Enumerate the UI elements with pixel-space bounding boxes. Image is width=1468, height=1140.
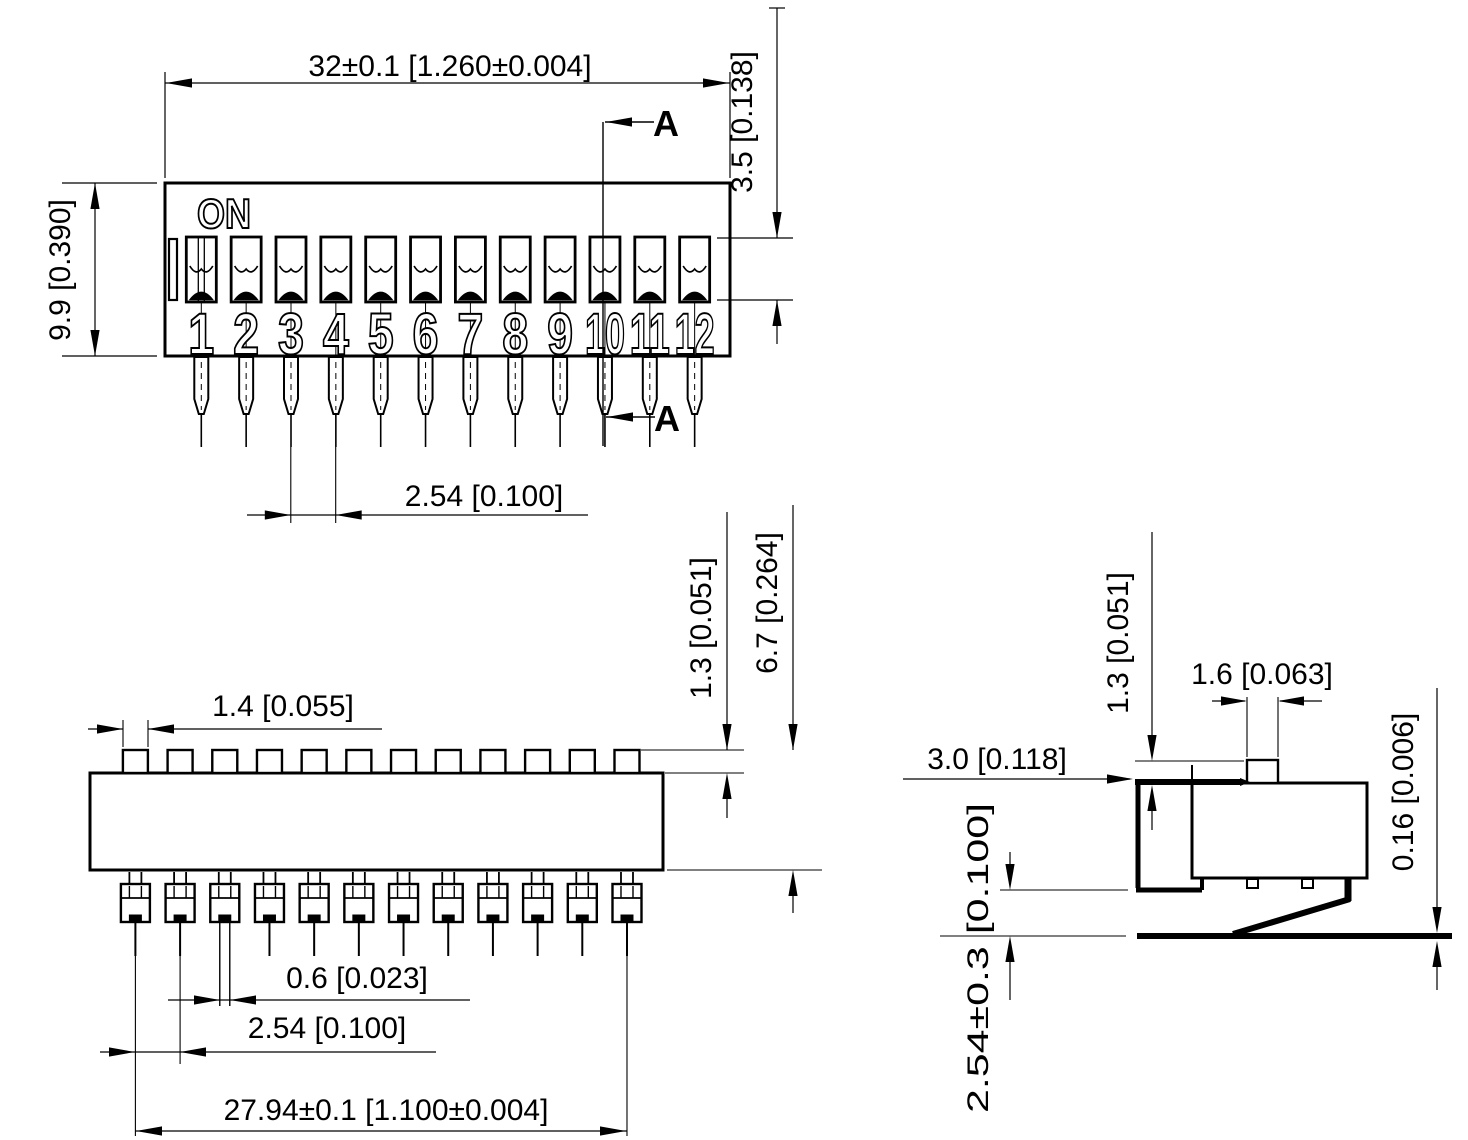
bottom-actuator-10 xyxy=(525,750,550,773)
bottom-pin-5 xyxy=(300,872,329,956)
front-switch-4 xyxy=(321,237,351,302)
arrowhead xyxy=(90,330,99,356)
bottom-body-outline xyxy=(90,773,663,870)
bottom-actuator-7 xyxy=(391,750,416,773)
front-switch-8 xyxy=(500,237,530,302)
arrowhead xyxy=(607,412,633,421)
arrowhead xyxy=(90,183,99,209)
front-pin-6 xyxy=(419,357,433,447)
bottom-actuator-width-dimension: 1.4 [0.055] xyxy=(212,690,354,723)
front-switch-12 xyxy=(680,237,710,302)
bottom-actuator-8 xyxy=(436,750,461,773)
bottom-pin-10 xyxy=(523,872,552,956)
arrowhead xyxy=(194,995,220,1004)
front-pin-2 xyxy=(239,357,253,447)
arrowhead xyxy=(1107,774,1133,783)
bottom-actuator-3 xyxy=(212,750,237,773)
arrowhead xyxy=(722,773,731,799)
front-switch-6 xyxy=(411,237,441,302)
bottom-actuator-4 xyxy=(257,750,282,773)
bottom-pin-2 xyxy=(166,872,195,1064)
arrowhead xyxy=(1147,735,1156,761)
arrowhead xyxy=(1432,907,1441,933)
front-switch-3 xyxy=(276,237,306,302)
front-height-dimension: 9.9 [0.390] xyxy=(44,199,77,341)
bottom-actuator-height-dimension: 1.3 [0.051] xyxy=(685,557,718,699)
technical-drawing-canvas: 123456789101112 ON 32±0.1 [1.260±0.004] … xyxy=(0,0,1468,1140)
bottom-span-dimension: 27.94±0.1 [1.100±0.004] xyxy=(224,1094,549,1127)
front-pitch-dimension: 2.54 [0.100] xyxy=(405,480,563,513)
arrowhead xyxy=(788,870,797,896)
front-switch-10 xyxy=(590,237,620,302)
arrowhead xyxy=(722,724,731,750)
front-pin-row xyxy=(194,357,701,447)
front-switch-11 xyxy=(635,237,665,302)
front-switch-7 xyxy=(455,237,485,302)
front-pin-9 xyxy=(553,357,567,447)
front-pin-12 xyxy=(688,357,702,447)
bottom-pin-9 xyxy=(478,872,507,956)
front-pin-1 xyxy=(194,357,208,447)
front-pin-5 xyxy=(374,357,388,447)
arrowhead xyxy=(336,510,362,519)
bottom-actuator-5 xyxy=(302,750,327,773)
bottom-pitch-dimension: 2.54 [0.100] xyxy=(248,1012,406,1045)
front-pin-8 xyxy=(508,357,522,447)
front-pin-3 xyxy=(284,357,298,447)
side-lead-pitch-dimension: 2.54±0.3 [0.100] xyxy=(962,803,995,1113)
bottom-actuator-2 xyxy=(168,750,193,773)
section-label-top: A xyxy=(653,103,679,144)
bottom-pin-3 xyxy=(210,872,239,1006)
arrowhead xyxy=(788,724,797,750)
arrowhead xyxy=(148,724,174,733)
side-view: 3.0 [0.118] 1.3 [0.051] 1.6 [0.063] 0.16… xyxy=(927,572,1420,1113)
front-switch-1 xyxy=(186,237,216,302)
side-actuator-height-dimension: 1.3 [0.051] xyxy=(1102,572,1135,714)
bottom-actuator-9 xyxy=(480,750,505,773)
bottom-actuator-12 xyxy=(614,750,639,773)
arrowhead xyxy=(1278,696,1304,705)
front-switch-9 xyxy=(545,237,575,302)
side-lead-offset-dimension: 3.0 [0.118] xyxy=(927,743,1067,776)
arrowhead xyxy=(166,78,192,87)
arrowhead xyxy=(230,995,256,1004)
arrowhead xyxy=(600,1126,626,1135)
bottom-view: 1.4 [0.055] 1.3 [0.051] 6.7 [0.264] 0.6 … xyxy=(90,532,784,1136)
front-view: 123456789101112 ON 32±0.1 [1.260±0.004] … xyxy=(44,50,759,513)
bottom-pin-4 xyxy=(255,872,284,956)
arrowhead xyxy=(1005,864,1014,890)
arrowhead xyxy=(97,724,123,733)
side-coplanarity-dimension: 0.16 [0.006] xyxy=(1387,713,1420,871)
arrowhead xyxy=(1221,696,1247,705)
side-actuator-width-dimension: 1.6 [0.063] xyxy=(1191,658,1333,691)
arrowhead xyxy=(1005,936,1014,962)
arrowhead xyxy=(1432,941,1441,967)
bottom-pin-1 xyxy=(121,872,150,1136)
section-label-bottom: A xyxy=(654,398,680,439)
bottom-pin-11 xyxy=(568,872,597,956)
on-label: ON xyxy=(197,190,251,237)
bottom-pin-8 xyxy=(434,872,463,956)
bottom-pin-6 xyxy=(344,872,373,956)
front-switch-5 xyxy=(366,237,396,302)
arrowhead xyxy=(606,117,632,126)
arrowhead xyxy=(265,510,291,519)
front-left-rib xyxy=(169,239,177,300)
arrowhead xyxy=(772,300,781,326)
side-foot-stub-2 xyxy=(1302,879,1313,888)
front-pin-4 xyxy=(329,357,343,447)
arrowhead xyxy=(1147,785,1156,811)
dip-switch-technical-drawing: 123456789101112 ON 32±0.1 [1.260±0.004] … xyxy=(0,0,1468,1140)
front-switch-2 xyxy=(231,237,261,302)
front-width-dimension: 32±0.1 [1.260±0.004] xyxy=(308,50,591,83)
arrowhead xyxy=(109,1047,135,1056)
side-foot-stub-1 xyxy=(1247,879,1258,888)
bottom-actuator-6 xyxy=(346,750,371,773)
front-pin-10 xyxy=(598,357,612,447)
front-actuator-height-dimension: 3.5 [0.138] xyxy=(726,51,759,193)
front-pin-7 xyxy=(463,357,477,447)
arrowhead xyxy=(136,1126,162,1135)
arrowhead xyxy=(180,1047,206,1056)
bottom-pin-12 xyxy=(612,872,641,1136)
bottom-lead-width-dimension: 0.6 [0.023] xyxy=(286,962,428,995)
side-actuator-bump xyxy=(1247,760,1278,783)
bottom-actuator-row xyxy=(123,750,640,773)
bottom-body-height-dimension: 6.7 [0.264] xyxy=(751,532,784,674)
arrowhead xyxy=(772,212,781,238)
bottom-pin-7 xyxy=(389,872,418,956)
bottom-actuator-1 xyxy=(123,750,148,773)
bottom-actuator-11 xyxy=(570,750,595,773)
side-body-outline xyxy=(1192,783,1367,878)
